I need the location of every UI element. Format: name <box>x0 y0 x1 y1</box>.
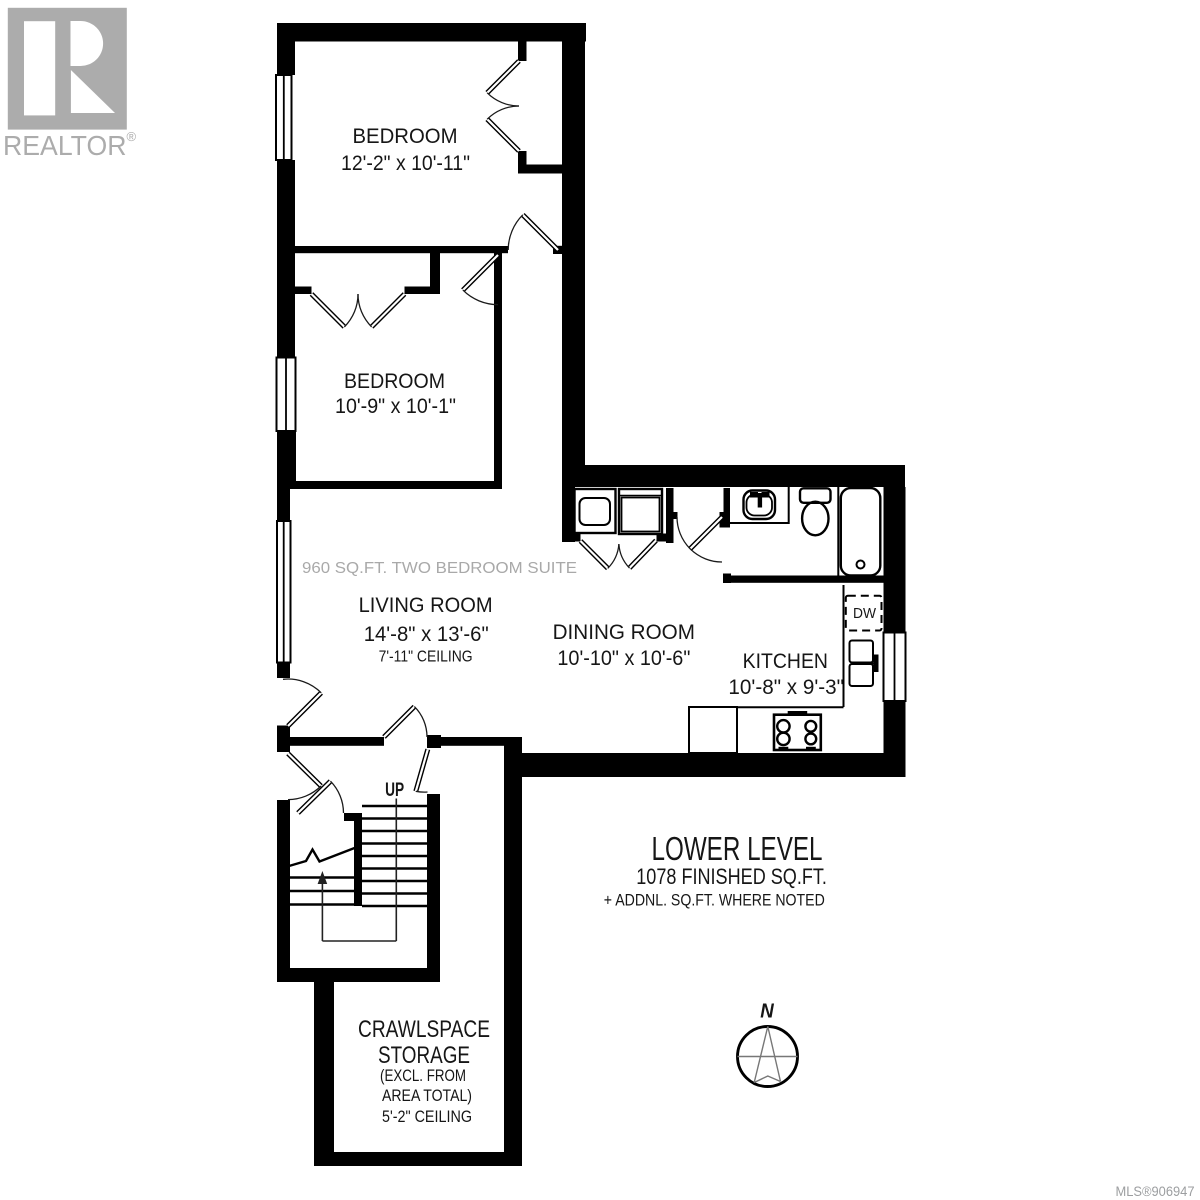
svg-text:CRAWLSPACE: CRAWLSPACE <box>358 1016 490 1043</box>
svg-text:5'-2" CEILING: 5'-2" CEILING <box>382 1108 472 1126</box>
svg-text:14'-8" x 13'-6": 14'-8" x 13'-6" <box>364 622 489 646</box>
svg-text:LIVING ROOM: LIVING ROOM <box>359 593 493 617</box>
svg-text:UP: UP <box>385 780 404 801</box>
svg-text:7'-11" CEILING: 7'-11" CEILING <box>379 649 473 666</box>
svg-text:12'-2" x 10'-11": 12'-2" x 10'-11" <box>341 151 470 175</box>
svg-text:BEDROOM: BEDROOM <box>344 369 445 393</box>
svg-text:BEDROOM: BEDROOM <box>353 124 458 148</box>
svg-text:960 SQ.FT. TWO BEDROOM SUITE: 960 SQ.FT. TWO BEDROOM SUITE <box>302 560 577 577</box>
svg-text:LOWER LEVEL: LOWER LEVEL <box>652 830 823 867</box>
svg-text:AREA TOTAL): AREA TOTAL) <box>382 1087 472 1105</box>
svg-text:+ ADDNL. SQ.FT. WHERE NOTED: + ADDNL. SQ.FT. WHERE NOTED <box>604 892 825 910</box>
svg-text:STORAGE: STORAGE <box>378 1042 470 1069</box>
svg-text:DW: DW <box>853 605 877 622</box>
svg-text:DINING ROOM: DINING ROOM <box>553 620 695 644</box>
svg-text:MLS®906947: MLS®906947 <box>1116 1184 1195 1199</box>
svg-text:10'-10" x 10'-6": 10'-10" x 10'-6" <box>557 646 690 670</box>
svg-text:®: ® <box>127 129 137 144</box>
svg-text:KITCHEN: KITCHEN <box>743 649 828 673</box>
svg-text:N: N <box>760 1001 774 1023</box>
svg-text:1078 FINISHED SQ.FT.: 1078 FINISHED SQ.FT. <box>636 864 827 889</box>
svg-text:10'-8" x 9'-3": 10'-8" x 9'-3" <box>728 675 844 699</box>
svg-text:10'-9" x 10'-1": 10'-9" x 10'-1" <box>335 394 456 418</box>
svg-text:REALTOR: REALTOR <box>3 130 127 161</box>
svg-text:(EXCL. FROM: (EXCL. FROM <box>380 1067 466 1085</box>
